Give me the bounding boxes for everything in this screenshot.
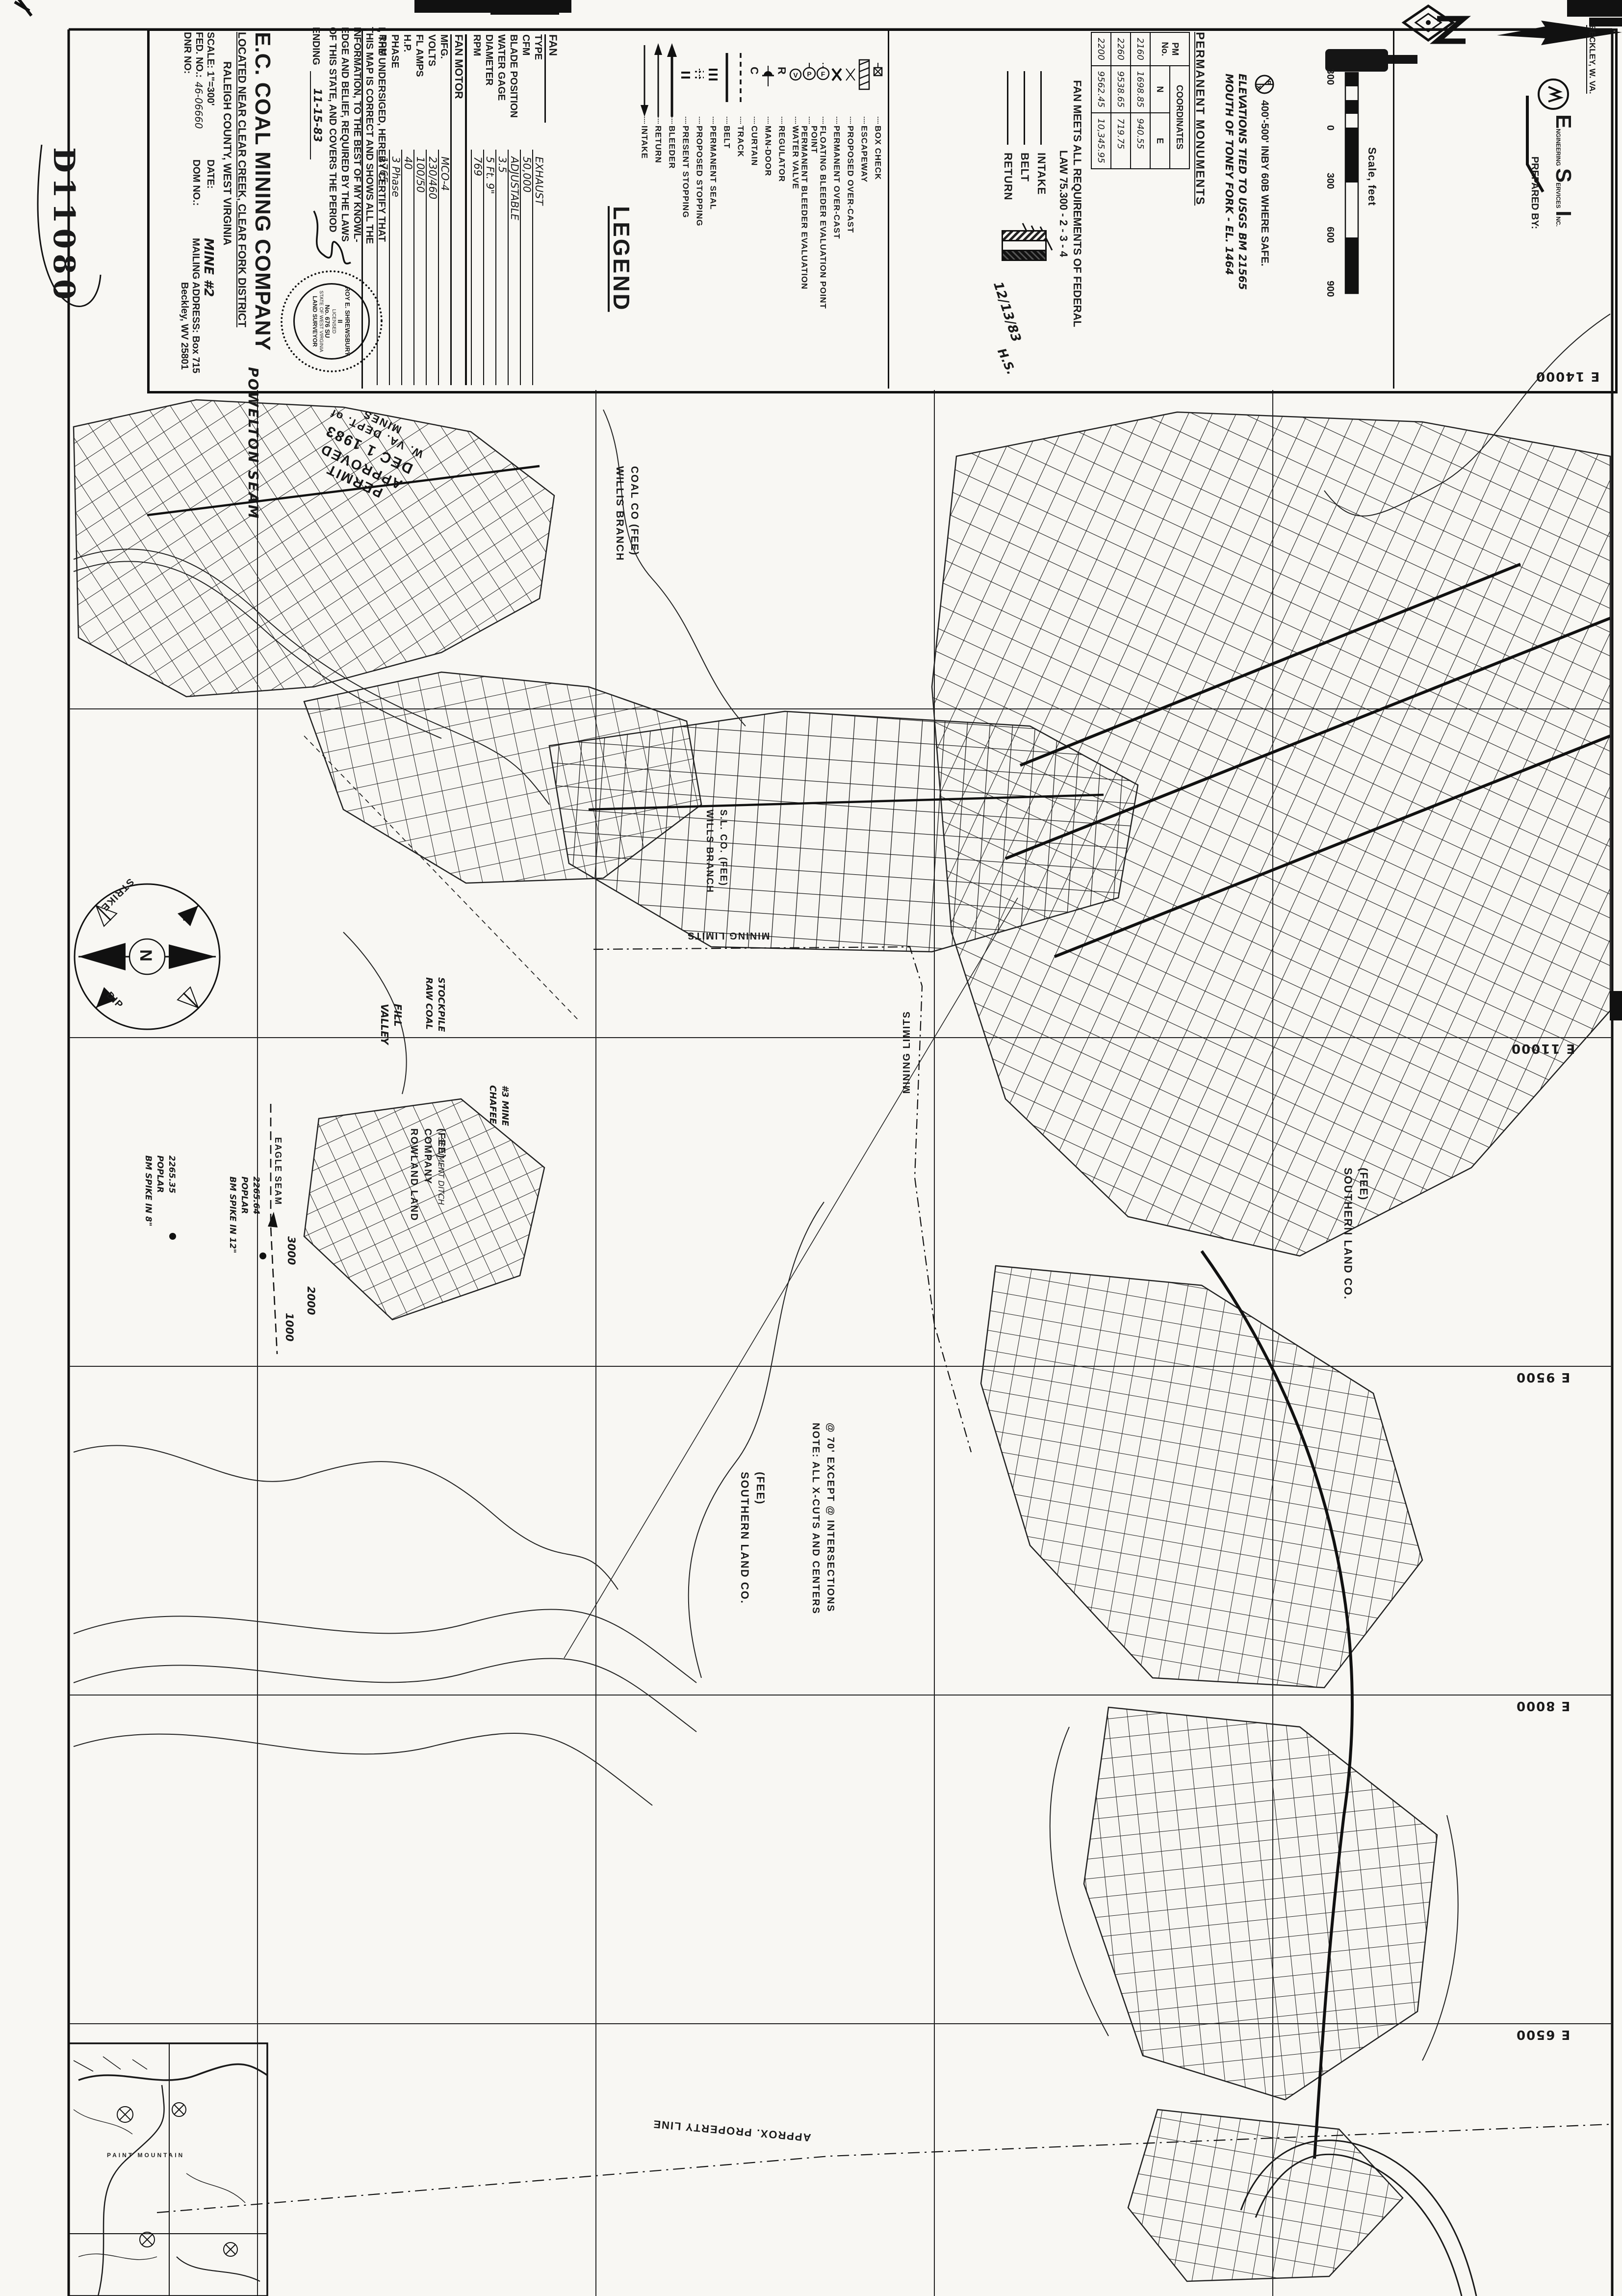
fan-row-value: 3.5: [495, 150, 508, 385]
belt-key-line: [1024, 71, 1026, 145]
grid-label-e9500: E 9500: [1516, 1370, 1570, 1384]
scale-tick: 0: [1324, 125, 1336, 130]
fan-requirements-section: FAN MEETS ALL REQUIREMENTS OF FEDERAL LA…: [912, 32, 1084, 375]
monument-cell: 2200: [1091, 32, 1111, 66]
monument-cell: 940.55: [1131, 113, 1150, 169]
fan-row-value: EXHAUST: [532, 150, 545, 385]
box-check-icon: [872, 43, 884, 117]
mining-limits-h-label: MINING LIMITS: [687, 930, 770, 941]
grid-label-e6500: E 6500: [1516, 2027, 1570, 2042]
fan-row-label: TYPE: [532, 34, 543, 150]
ending-label: ENDING: [310, 27, 321, 65]
chafee-mine-label: CHAFEE #3 MINE: [487, 1085, 511, 1126]
eagle-seam-label: EAGLE SEAM: [273, 1137, 283, 1205]
mailing-city: Beckley, WV 25801: [179, 282, 190, 385]
monument-cell: 2260: [1111, 32, 1131, 66]
valley-fill-label: VALLEY FILL: [378, 1004, 404, 1044]
checked-date: 12/13/83: [990, 280, 1024, 344]
fan-motor-row-value: MCO-4: [438, 150, 451, 385]
permanent-bleeder-point-icon: P: [802, 43, 816, 117]
escapeway-icon: [858, 43, 871, 117]
sediment-ditch-label: SEDIMENT DITCH: [437, 1137, 446, 1205]
monument-symbol-icon: PX: [1254, 74, 1275, 95]
title-block-divider-2: [888, 28, 889, 389]
seal-state: STATE OF WEST VIRGINIA: [319, 290, 324, 352]
proposed-stopping-icon: [694, 43, 705, 117]
fan-motor-row-value: 230/460: [426, 150, 438, 385]
return-arrow-icon: [653, 43, 663, 117]
svg-text:X: X: [1255, 85, 1262, 90]
monument-cell: 9538.65: [1111, 66, 1131, 113]
southern-land-label-2: SOUTHERN LAND CO. (FEE): [1340, 1168, 1371, 1300]
fan-motor-header: FAN MOTOR: [450, 34, 467, 385]
fan-row-label: RPM: [471, 34, 482, 150]
scale-tick: 600: [1324, 227, 1336, 243]
scale-tick: 300: [1324, 173, 1336, 189]
fan-row-label: WATER GAGE: [495, 34, 507, 150]
scale-tick: 900: [1324, 281, 1336, 297]
fan-motor-row-value: 3 Phase: [389, 150, 402, 385]
seal-license-no: No. 676 SU: [324, 305, 332, 338]
dom-label: DOM NO.:: [190, 159, 202, 238]
certification-section: I, THE UNDERSIGED, HEREBY CERTIFY THAT T…: [272, 27, 387, 385]
monuments-section: PERMANENT MONUMENTS PM No. COORDINATES N…: [1084, 32, 1207, 385]
fan-motor-row-label: MFG.: [438, 34, 449, 150]
belt-line-icon: [722, 43, 732, 117]
compass-north-label: N: [136, 949, 155, 962]
bm8-label: BM SPIKE IN 8" POPLAR 2265.35: [142, 1155, 178, 1226]
surveyor-seal: ROY E. SHREWSBURY II LICENSED No. 676 SU…: [281, 270, 383, 372]
mailing-address: MAILING ADDRESS: Box 715: [190, 238, 201, 385]
company-section: E.C. COAL MINING COMPANY LOCATED NEAR CL…: [150, 32, 275, 385]
notes-section: PX 400'-500' INBY 60B WHERE SAFE. ELEVAT…: [1202, 74, 1275, 319]
grid-label-e11000: E 11000: [1511, 1041, 1575, 1056]
quantity-3000: 3000: [285, 1236, 297, 1265]
title-block-divider-3: [1393, 28, 1394, 389]
fan-motor-row-label: VOLTS: [426, 34, 437, 150]
intake-key-label: INTAKE: [1035, 153, 1048, 195]
curtain-symbol-icon: C: [748, 43, 761, 117]
legend-title: LEGEND: [608, 206, 635, 312]
company-county: RALEIGH COUNTY, WEST VIRGINIA: [221, 61, 233, 385]
monuments-subcol: E: [1150, 113, 1170, 169]
fed-label: FED. NO.:: [193, 32, 205, 78]
monuments-col-coordinates: COORDINATES: [1170, 66, 1189, 169]
monuments-table: PM No. COORDINATES NE 2160 1698.85 940.5…: [1091, 32, 1190, 169]
svg-text:V: V: [793, 71, 798, 79]
fan-requirements-note: FAN MEETS ALL REQUIREMENTS OF FEDERAL LA…: [1056, 32, 1084, 375]
company-located: LOCATED NEAR CLEAR CREEK, CLEAR FORK DIS…: [235, 32, 248, 385]
fan-motor-row-value: 1765: [377, 150, 389, 385]
monument-cell: 9562.45: [1091, 66, 1111, 113]
bleeder-arrow-icon: [667, 43, 677, 117]
wills-sl-label: WILLS BRANCH S.L. CO. (FEE): [702, 809, 730, 893]
mining-limits-v-label: MINING LIMITS: [901, 1011, 913, 1094]
fan-row-label: DIAMETER: [483, 34, 494, 150]
intake-arrow-icon: [640, 43, 649, 117]
monuments-subcol: N: [1150, 66, 1170, 113]
airway-color-swatch: [1002, 230, 1047, 261]
monument-cell: 10,345.95: [1091, 113, 1111, 169]
scale-label: SCALE: 1"=300': [205, 32, 216, 159]
document-number: D11080: [47, 147, 81, 305]
fan-header: FAN: [544, 34, 559, 123]
water-valve-icon: V: [789, 43, 802, 117]
ending-date: 11-15-83: [310, 71, 323, 159]
svg-text:P: P: [1265, 80, 1272, 85]
track-line-icon: [736, 43, 746, 117]
monument-note: 400'-500' INBY 60B WHERE SAFE.: [1259, 100, 1270, 266]
prepared-by-section: BECKLEY, W. VA. ENGINEERING SERVICES INC…: [1491, 22, 1614, 233]
monuments-col-pm: PM No.: [1150, 32, 1189, 66]
man-door-icon: [762, 43, 774, 117]
legend-items: INTAKE RETURN BLEEDER PRESENT STOPPING P…: [638, 43, 884, 318]
elevation-note: ELEVATIONS TIED TO USGS BM 21565 MOUTH O…: [1222, 74, 1249, 319]
fan-motor-row-label: PHASE: [389, 34, 400, 150]
seal-name: ROY E. SHREWSBURY II: [337, 285, 352, 358]
company-title: E.C. COAL MINING COMPANY: [250, 32, 275, 385]
esi-wordmark: ENGINEERING SERVICES INC.: [1551, 114, 1575, 227]
checked-initials: H.S.: [995, 346, 1018, 377]
mine-map-sheet: D11080 E.C. COAL MINING COMPANY LOCATED …: [0, 0, 1622, 2296]
return-key-label: RETURN: [1002, 153, 1014, 201]
mine-name: MINE #2: [201, 238, 216, 385]
permanent-seal-icon: [708, 43, 719, 117]
fan-table: FAN TYPEEXHAUST CFM50,000 BLADE POSITION…: [387, 34, 559, 385]
willis-branch-label: WILLIS BRANCH COAL CO (FEE): [612, 466, 642, 561]
monument-cell: 2160: [1131, 32, 1150, 66]
return-key-line: [1007, 71, 1009, 145]
intake-key-line: [1041, 71, 1042, 145]
prepared-by-label: PREPARED BY:: [1529, 157, 1540, 229]
xcuts-note-label: NOTE: ALL X-CUTS AND CENTERS @ 70' EXCEP…: [808, 1423, 838, 1615]
monument-cell: 719.75: [1111, 113, 1131, 169]
fan-motor-row-value: 40: [401, 150, 414, 385]
proposed-overcast-icon: [845, 43, 856, 117]
fan-row-label: CFM: [520, 34, 531, 150]
fan-row-value: 5 Ft. 9": [483, 150, 496, 385]
quantity-1000: 1000: [283, 1313, 295, 1341]
present-stopping-icon: [680, 43, 691, 117]
seal-licensed: LICENSED: [332, 309, 337, 334]
fan-motor-row-value: 100/50: [413, 150, 426, 385]
fan-motor-row-label: H.P.: [401, 34, 412, 150]
seal-title: LAND SURVEYOR: [312, 296, 319, 347]
prepared-city: BECKLEY, W. VA.: [1586, 25, 1597, 94]
regulator-symbol-icon: R: [775, 43, 788, 117]
fed-number: 46-06660: [193, 81, 205, 129]
scale-tick: 300: [1324, 69, 1336, 85]
scale-caption: Scale, feet: [1365, 147, 1378, 206]
fan-row-value: 769: [471, 150, 484, 385]
bm12-label: BM SPIKE IN 12" POPLAR 2265.64: [227, 1176, 262, 1253]
dnr-label: DNR NO:: [181, 32, 193, 159]
raw-coal-label: RAW COAL STOCKPILE: [423, 977, 447, 1032]
floating-bleeder-point-icon: F: [816, 43, 830, 117]
southern-land-label-1: SOUTHERN LAND CO. (FEE): [737, 1472, 768, 1604]
svg-text:P: P: [807, 70, 811, 78]
fan-row-value: 50,000: [520, 150, 533, 385]
quantity-2000: 2000: [305, 1286, 317, 1315]
belt-key-label: BELT: [1018, 153, 1031, 182]
inset-location-map: [69, 2043, 267, 2296]
seam-label: POWELTON SEAM: [245, 367, 261, 520]
grid-label-e14000: E 14000: [1535, 369, 1599, 384]
fan-row-value: ADJUSTABLE: [508, 150, 520, 385]
fan-row-label: BLADE POSITION: [508, 34, 519, 150]
date-label: DATE:: [205, 159, 216, 238]
permanent-overcast-icon: [831, 43, 843, 117]
fan-motor-row-label: RPM: [377, 34, 388, 150]
monument-cell: 1698.85: [1131, 66, 1150, 113]
paint-mountain-label: PAINT MOUNTAIN: [107, 2152, 184, 2159]
svg-text:F: F: [821, 70, 825, 78]
grid-label-e8000: E 8000: [1516, 1698, 1570, 1713]
fan-motor-row-label: FL AMPS: [413, 34, 425, 150]
